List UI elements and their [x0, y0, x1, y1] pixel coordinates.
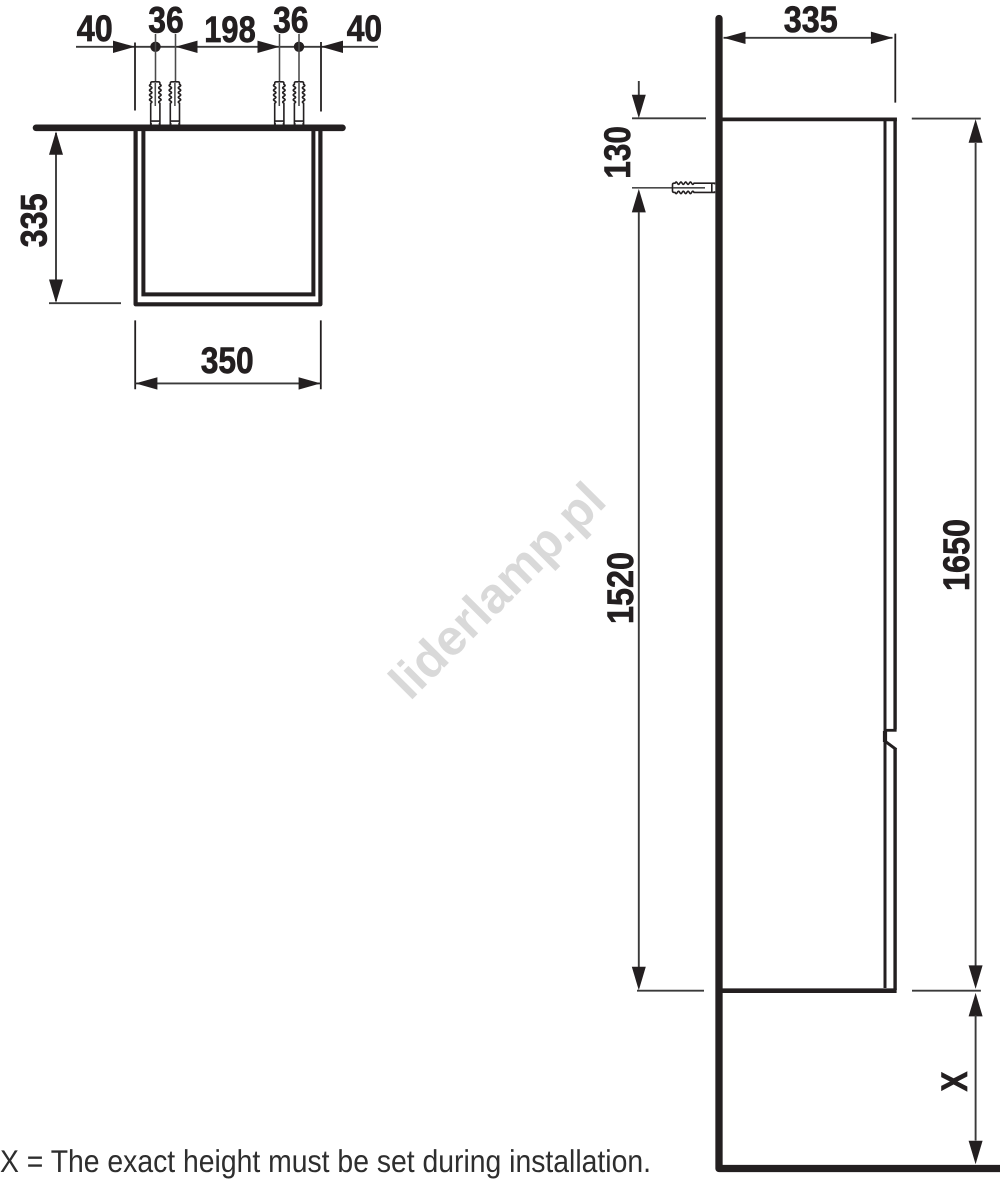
svg-text:36: 36 — [273, 0, 308, 40]
svg-text:1520: 1520 — [600, 552, 641, 624]
svg-text:36: 36 — [148, 0, 183, 40]
svg-text:335: 335 — [14, 193, 55, 247]
svg-text:335: 335 — [784, 0, 838, 40]
svg-text:1650: 1650 — [936, 519, 977, 591]
svg-text:350: 350 — [201, 340, 254, 381]
svg-text:198: 198 — [204, 9, 255, 50]
svg-text:X = The exact height must be s: X = The exact height must be set during … — [0, 1143, 651, 1179]
svg-text:130: 130 — [597, 126, 638, 179]
svg-text:40: 40 — [347, 8, 382, 49]
svg-text:X: X — [934, 1071, 975, 1091]
svg-text:40: 40 — [77, 8, 113, 49]
